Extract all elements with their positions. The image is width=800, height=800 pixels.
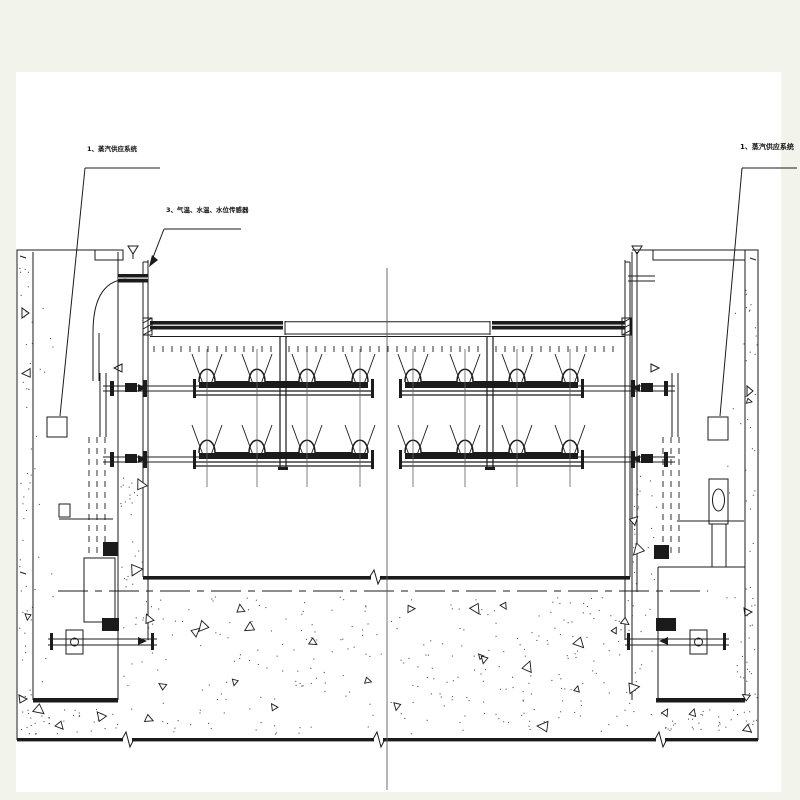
- concrete-dot: [745, 470, 746, 471]
- concrete-dot: [538, 636, 539, 637]
- concrete-dot: [175, 621, 176, 622]
- concrete-dot: [112, 714, 113, 715]
- concrete-dot: [256, 600, 257, 601]
- concrete-dot: [749, 723, 750, 724]
- pipe-coupling: [125, 454, 137, 463]
- concrete-dot: [79, 712, 80, 713]
- concrete-dot: [754, 490, 755, 491]
- concrete-dot: [444, 705, 445, 706]
- concrete-dot: [496, 623, 497, 624]
- concrete-dot: [632, 615, 633, 616]
- concrete-dot: [702, 715, 703, 716]
- concrete-dot: [531, 632, 532, 633]
- concrete-dot: [25, 652, 26, 653]
- concrete-dot: [747, 615, 748, 616]
- concrete-dot: [529, 721, 530, 722]
- concrete-dot: [23, 496, 24, 497]
- concrete-dot: [635, 543, 636, 544]
- concrete-dot: [31, 475, 32, 476]
- concrete-dot: [641, 631, 642, 632]
- concrete-dot: [446, 682, 447, 683]
- left-chamber-floor: [33, 698, 118, 703]
- concrete-dot: [282, 644, 283, 645]
- concrete-dot: [485, 669, 486, 670]
- concrete-dot: [591, 598, 592, 599]
- concrete-dot: [377, 634, 378, 635]
- concrete-dot: [587, 606, 588, 607]
- concrete-dot: [474, 656, 475, 657]
- concrete-dot: [311, 727, 312, 728]
- concrete-dot: [418, 666, 419, 667]
- concrete-dot: [75, 710, 76, 711]
- concrete-dot: [138, 550, 139, 551]
- basin-floor: [143, 576, 630, 580]
- concrete-dot: [399, 617, 400, 618]
- concrete-dot: [523, 691, 524, 692]
- concrete-dot: [79, 716, 80, 717]
- concrete-dot: [737, 671, 738, 672]
- concrete-dot: [637, 494, 638, 495]
- concrete-dot: [433, 678, 434, 679]
- concrete-dot: [411, 733, 412, 734]
- concrete-dot: [286, 619, 287, 620]
- concrete-dot: [525, 656, 526, 657]
- concrete-dot: [616, 716, 617, 717]
- concrete-dot: [38, 557, 39, 558]
- concrete-dot: [633, 562, 634, 563]
- concrete-dot: [49, 723, 50, 724]
- concrete-dot: [653, 537, 654, 538]
- concrete-dot: [619, 621, 620, 622]
- concrete-dot: [300, 683, 301, 684]
- concrete-dot: [35, 734, 36, 735]
- concrete-dot: [637, 488, 638, 489]
- concrete-dot: [608, 724, 609, 725]
- concrete-dot: [126, 579, 127, 580]
- concrete-dot: [311, 637, 312, 638]
- concrete-dot: [496, 714, 497, 715]
- concrete-dot: [22, 659, 23, 660]
- concrete-dot: [123, 485, 124, 486]
- label-steam-supply-left: 1、蒸汽供应系统: [87, 144, 138, 153]
- concrete-dot: [303, 611, 304, 612]
- concrete-dot: [132, 584, 133, 585]
- concrete-dot: [342, 639, 343, 640]
- concrete-dot: [749, 311, 750, 312]
- concrete-dot: [602, 597, 603, 598]
- concrete-dot: [276, 732, 277, 733]
- spray-pipe: [199, 381, 368, 388]
- concrete-dot: [483, 681, 484, 682]
- pipe-end-plate: [399, 450, 402, 469]
- concrete-dot: [412, 685, 413, 686]
- concrete-dot: [469, 700, 470, 701]
- concrete-dot: [619, 654, 620, 655]
- concrete-dot: [29, 482, 30, 483]
- concrete-dot: [45, 658, 46, 659]
- concrete-dot: [648, 547, 649, 548]
- concrete-dot: [551, 680, 552, 681]
- concrete-dot: [637, 482, 638, 483]
- concrete-dot: [609, 650, 610, 651]
- concrete-dot: [313, 659, 314, 660]
- concrete-dot: [43, 721, 44, 722]
- concrete-dot: [650, 480, 651, 481]
- concrete-dot: [256, 730, 257, 731]
- concrete-dot: [163, 619, 164, 620]
- concrete-dot: [297, 671, 298, 672]
- concrete-dot: [148, 639, 149, 640]
- concrete-dot: [633, 547, 634, 548]
- concrete-dot: [701, 729, 702, 730]
- concrete-dot: [173, 731, 174, 732]
- concrete-dot: [725, 727, 726, 728]
- concrete-dot: [628, 600, 629, 601]
- concrete-dot: [25, 696, 26, 697]
- concrete-dot: [703, 711, 704, 712]
- concrete-dot: [432, 668, 433, 669]
- concrete-dot: [423, 644, 424, 645]
- concrete-dot: [227, 637, 228, 638]
- concrete-dot: [481, 609, 482, 610]
- concrete-dot: [172, 634, 173, 635]
- concrete-dot: [178, 720, 179, 721]
- concrete-dot: [562, 700, 563, 701]
- concrete-dot: [123, 627, 124, 628]
- concrete-dot: [752, 598, 753, 599]
- concrete-dot: [411, 599, 412, 600]
- concrete-dot: [756, 720, 757, 721]
- concrete-dot: [755, 354, 756, 355]
- concrete-dot: [21, 729, 22, 730]
- concrete-dot: [20, 272, 21, 273]
- concrete-dot: [135, 556, 136, 557]
- concrete-dot: [32, 322, 33, 323]
- label-steam-supply-right: 1、蒸汽供应系统: [740, 142, 794, 151]
- concrete-dot: [28, 713, 29, 714]
- concrete-dot: [531, 693, 532, 694]
- concrete-dot: [295, 681, 296, 682]
- concrete-dot: [615, 620, 616, 621]
- concrete-dot: [234, 661, 235, 662]
- concrete-dot: [343, 675, 344, 676]
- concrete-dot: [188, 609, 189, 610]
- concrete-dot: [21, 295, 22, 296]
- concrete-dot: [672, 721, 673, 722]
- concrete-dot: [25, 646, 26, 647]
- concrete-dot: [756, 336, 757, 337]
- concrete-dot: [311, 683, 312, 684]
- concrete-dot: [733, 710, 734, 711]
- concrete-dot: [331, 610, 332, 611]
- concrete-dot: [651, 528, 652, 529]
- concrete-dot: [520, 644, 521, 645]
- concrete-dot: [673, 725, 674, 726]
- concrete-dot: [737, 665, 738, 666]
- concrete-dot: [747, 669, 748, 670]
- concrete-dot: [750, 427, 751, 428]
- concrete-dot: [131, 483, 132, 484]
- concrete-dot: [403, 662, 404, 663]
- concrete-dot: [583, 603, 584, 604]
- concrete-dot: [743, 343, 744, 344]
- concrete-dot: [370, 704, 371, 705]
- concrete-dot: [741, 642, 742, 643]
- concrete-dot: [719, 722, 720, 723]
- concrete-dot: [651, 714, 652, 715]
- concrete-dot: [261, 722, 262, 723]
- concrete-dot: [752, 448, 753, 449]
- concrete-dot: [123, 478, 124, 479]
- concrete-dot: [453, 680, 454, 681]
- concrete-dot: [751, 304, 752, 305]
- concrete-dot: [740, 676, 741, 677]
- concrete-dot: [26, 586, 27, 587]
- concrete-dot: [567, 655, 568, 656]
- concrete-dot: [692, 727, 693, 728]
- concrete-dot: [603, 643, 604, 644]
- concrete-dot: [381, 654, 382, 655]
- pipe-end-plate: [371, 450, 374, 469]
- concrete-dot: [583, 612, 584, 613]
- concrete-dot: [757, 697, 758, 698]
- concrete-dot: [521, 715, 522, 716]
- concrete-dot: [601, 731, 602, 732]
- drawing-canvas: 1、蒸汽供应系统 3、气温、水温、水位传感器 1、蒸汽供应系统: [0, 0, 800, 800]
- concrete-dot: [729, 492, 730, 493]
- concrete-dot: [115, 727, 116, 728]
- concrete-dot: [312, 624, 313, 625]
- concrete-dot: [749, 637, 750, 638]
- concrete-dot: [19, 628, 20, 629]
- concrete-dot: [301, 630, 302, 631]
- concrete-dot: [441, 697, 442, 698]
- concrete-dot: [265, 607, 266, 608]
- concrete-dot: [23, 382, 24, 383]
- concrete-dot: [731, 719, 732, 720]
- concrete-dot: [136, 617, 137, 618]
- concrete-dot: [750, 509, 751, 510]
- concrete-dot: [348, 648, 349, 649]
- concrete-dot: [27, 727, 28, 728]
- concrete-dot: [581, 701, 582, 702]
- concrete-dot: [757, 344, 758, 345]
- concrete-dot: [693, 728, 694, 729]
- concrete-dot: [413, 702, 414, 703]
- concrete-dot: [163, 703, 164, 704]
- concrete-dot: [200, 710, 201, 711]
- concrete-dot: [296, 685, 297, 686]
- concrete-dot: [354, 647, 355, 648]
- concrete-dot: [637, 508, 638, 509]
- concrete-dot: [746, 662, 747, 663]
- concrete-dot: [248, 609, 249, 610]
- concrete-dot: [226, 699, 227, 700]
- concrete-dot: [148, 627, 149, 628]
- flange: [664, 452, 668, 467]
- concrete-dot: [299, 733, 300, 734]
- concrete-dot: [440, 693, 441, 694]
- concrete-dot: [746, 294, 747, 295]
- concrete-dot: [373, 715, 374, 716]
- concrete-dot: [752, 724, 753, 725]
- concrete-dot: [481, 674, 482, 675]
- concrete-dot: [640, 491, 641, 492]
- concrete-dot: [742, 656, 743, 657]
- concrete-dot: [651, 574, 652, 575]
- concrete-dot: [91, 731, 92, 732]
- concrete-dot: [365, 611, 366, 612]
- pipe-end-plate: [581, 379, 584, 398]
- concrete-dot: [430, 640, 431, 641]
- concrete-dot: [427, 720, 428, 721]
- concrete-dot: [688, 719, 689, 720]
- concrete-dot: [457, 677, 458, 678]
- concrete-dot: [215, 632, 216, 633]
- concrete-dot: [530, 675, 531, 676]
- concrete-dot: [575, 653, 576, 654]
- concrete-dot: [127, 685, 128, 686]
- concrete-dot: [590, 613, 591, 614]
- concrete-dot: [641, 664, 642, 665]
- concrete-dot: [365, 606, 366, 607]
- concrete-dot: [627, 725, 628, 726]
- concrete-dot: [636, 681, 637, 682]
- concrete-dot: [577, 651, 578, 652]
- concrete-dot: [340, 639, 341, 640]
- concrete-dot: [718, 716, 719, 717]
- concrete-dot: [22, 712, 23, 713]
- concrete-dot: [124, 676, 125, 677]
- concrete-dot: [152, 624, 153, 625]
- concrete-dot: [745, 396, 746, 397]
- concrete-dot: [427, 677, 428, 678]
- concrete-dot: [534, 709, 535, 710]
- concrete-dot: [391, 621, 392, 622]
- concrete-dot: [53, 596, 54, 597]
- concrete-dot: [618, 641, 619, 642]
- concrete-dot: [221, 693, 222, 694]
- concrete-dot: [554, 628, 555, 629]
- concrete-dot: [19, 268, 20, 269]
- concrete-dot: [324, 672, 325, 673]
- concrete-dot: [49, 717, 50, 718]
- right-chamber-floor: [656, 698, 745, 703]
- concrete-dot: [570, 602, 571, 603]
- concrete-dot: [303, 685, 304, 686]
- concrete-dot: [142, 620, 143, 621]
- concrete-dot: [208, 723, 209, 724]
- concrete-dot: [558, 717, 559, 718]
- concrete-dot: [26, 344, 27, 345]
- concrete-dot: [753, 495, 754, 496]
- concrete-dot: [547, 640, 548, 641]
- concrete-dot: [275, 734, 276, 735]
- concrete-dot: [568, 658, 569, 659]
- concrete-dot: [152, 633, 153, 634]
- concrete-dot: [57, 733, 58, 734]
- concrete-dot: [496, 636, 497, 637]
- concrete-dot: [137, 495, 138, 496]
- concrete-dot: [31, 694, 32, 695]
- label-sensors: 3、气温、水温、水位传感器: [166, 205, 249, 214]
- concrete-dot: [271, 630, 272, 631]
- concrete-dot: [316, 640, 317, 641]
- concrete-dot: [754, 649, 755, 650]
- concrete-dot: [750, 587, 751, 588]
- concrete-dot: [158, 609, 159, 610]
- concrete-dot: [174, 728, 175, 729]
- concrete-dot: [557, 597, 558, 598]
- concrete-dot: [638, 506, 639, 507]
- concrete-dot: [28, 389, 29, 390]
- concrete-dot: [258, 664, 259, 665]
- concrete-dot: [593, 618, 594, 619]
- concrete-dot: [362, 629, 363, 630]
- concrete-dot: [727, 466, 728, 467]
- concrete-dot: [43, 308, 44, 309]
- concrete-dot: [633, 605, 634, 606]
- concrete-dot: [39, 504, 40, 505]
- concrete-dot: [753, 721, 754, 722]
- concrete-dot: [332, 651, 333, 652]
- concrete-dot: [391, 702, 392, 703]
- concrete-dot: [77, 732, 78, 733]
- concrete-dot: [669, 730, 670, 731]
- concrete-dot: [365, 654, 366, 655]
- concrete-dot: [572, 621, 573, 622]
- pipe-coupling: [641, 383, 653, 392]
- concrete-dot: [23, 518, 24, 519]
- concrete-dot: [745, 290, 746, 291]
- concrete-dot: [634, 529, 635, 530]
- pipe-end-plate: [371, 379, 374, 398]
- concrete-dot: [512, 677, 513, 678]
- concrete-dot: [464, 716, 465, 717]
- concrete-dot: [167, 723, 168, 724]
- concrete-dot: [35, 723, 36, 724]
- pipe-coupling: [125, 383, 137, 392]
- concrete-dot: [249, 708, 250, 709]
- concrete-dot: [50, 338, 51, 339]
- concrete-dot: [499, 666, 500, 667]
- concrete-dot: [581, 705, 582, 706]
- concrete-dot: [634, 572, 635, 573]
- concrete-dot: [564, 688, 565, 689]
- concrete-dot: [650, 609, 651, 610]
- concrete-dot: [752, 625, 753, 626]
- concrete-dot: [746, 721, 747, 722]
- concrete-dot: [135, 624, 136, 625]
- concrete-dot: [503, 721, 504, 722]
- concrete-dot: [32, 343, 33, 344]
- concrete-dot: [483, 702, 484, 703]
- concrete-dot: [401, 713, 402, 714]
- concrete-dot: [654, 579, 655, 580]
- concrete-dot: [24, 316, 25, 317]
- concrete-dot: [747, 419, 748, 420]
- concrete-dot: [749, 671, 750, 672]
- concrete-dot: [744, 712, 745, 713]
- concrete-dot: [442, 643, 443, 644]
- concrete-dot: [24, 633, 25, 634]
- concrete-dot: [498, 718, 499, 719]
- concrete-dot: [586, 637, 587, 638]
- concrete-dot: [751, 606, 752, 607]
- concrete-dot: [143, 617, 144, 618]
- concrete-dot: [599, 610, 600, 611]
- concrete-dot: [572, 636, 573, 637]
